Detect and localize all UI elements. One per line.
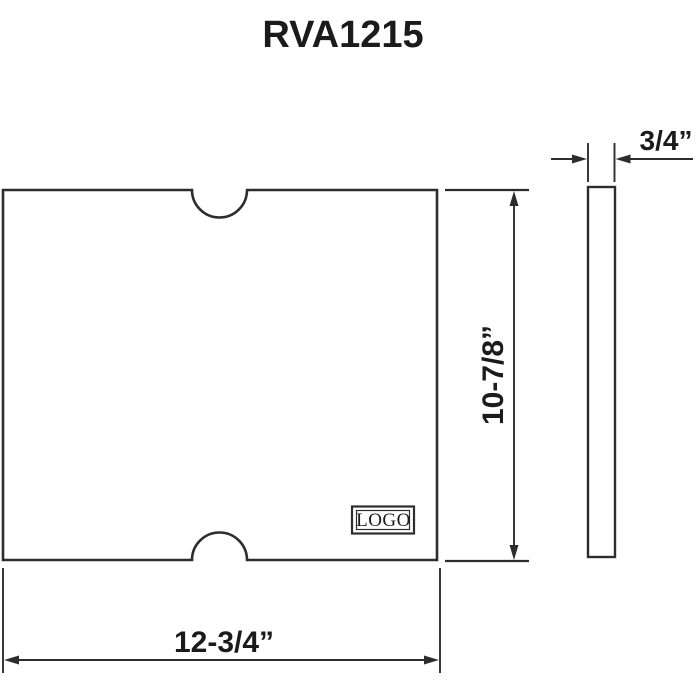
thickness-dimension-label: 3/4” xyxy=(640,125,693,156)
technical-drawing-page: RVA1215 LOGO 10-7/8” 12-3/4” xyxy=(0,0,700,700)
width-dimension: 12-3/4” xyxy=(3,568,440,673)
arrowhead-left-icon xyxy=(616,155,631,164)
arrowhead-right-icon xyxy=(572,155,587,164)
height-dimension-label: 10-7/8” xyxy=(477,325,510,425)
technical-drawing-canvas: RVA1215 LOGO 10-7/8” 12-3/4” xyxy=(0,0,700,700)
width-dimension-label: 12-3/4” xyxy=(174,626,274,659)
logo-text: LOGO xyxy=(356,510,411,531)
thickness-dimension: 3/4” xyxy=(551,125,693,182)
arrowhead-down-icon xyxy=(510,545,519,560)
arrowhead-right-icon xyxy=(424,656,439,665)
board-front-view-outline xyxy=(3,190,437,560)
height-dimension: 10-7/8” xyxy=(445,190,529,561)
arrowhead-left-icon xyxy=(4,656,19,665)
board-side-view-outline xyxy=(588,187,615,557)
arrowhead-up-icon xyxy=(510,191,519,206)
logo-stamp: LOGO xyxy=(352,507,414,534)
drawing-title: RVA1215 xyxy=(262,14,423,56)
